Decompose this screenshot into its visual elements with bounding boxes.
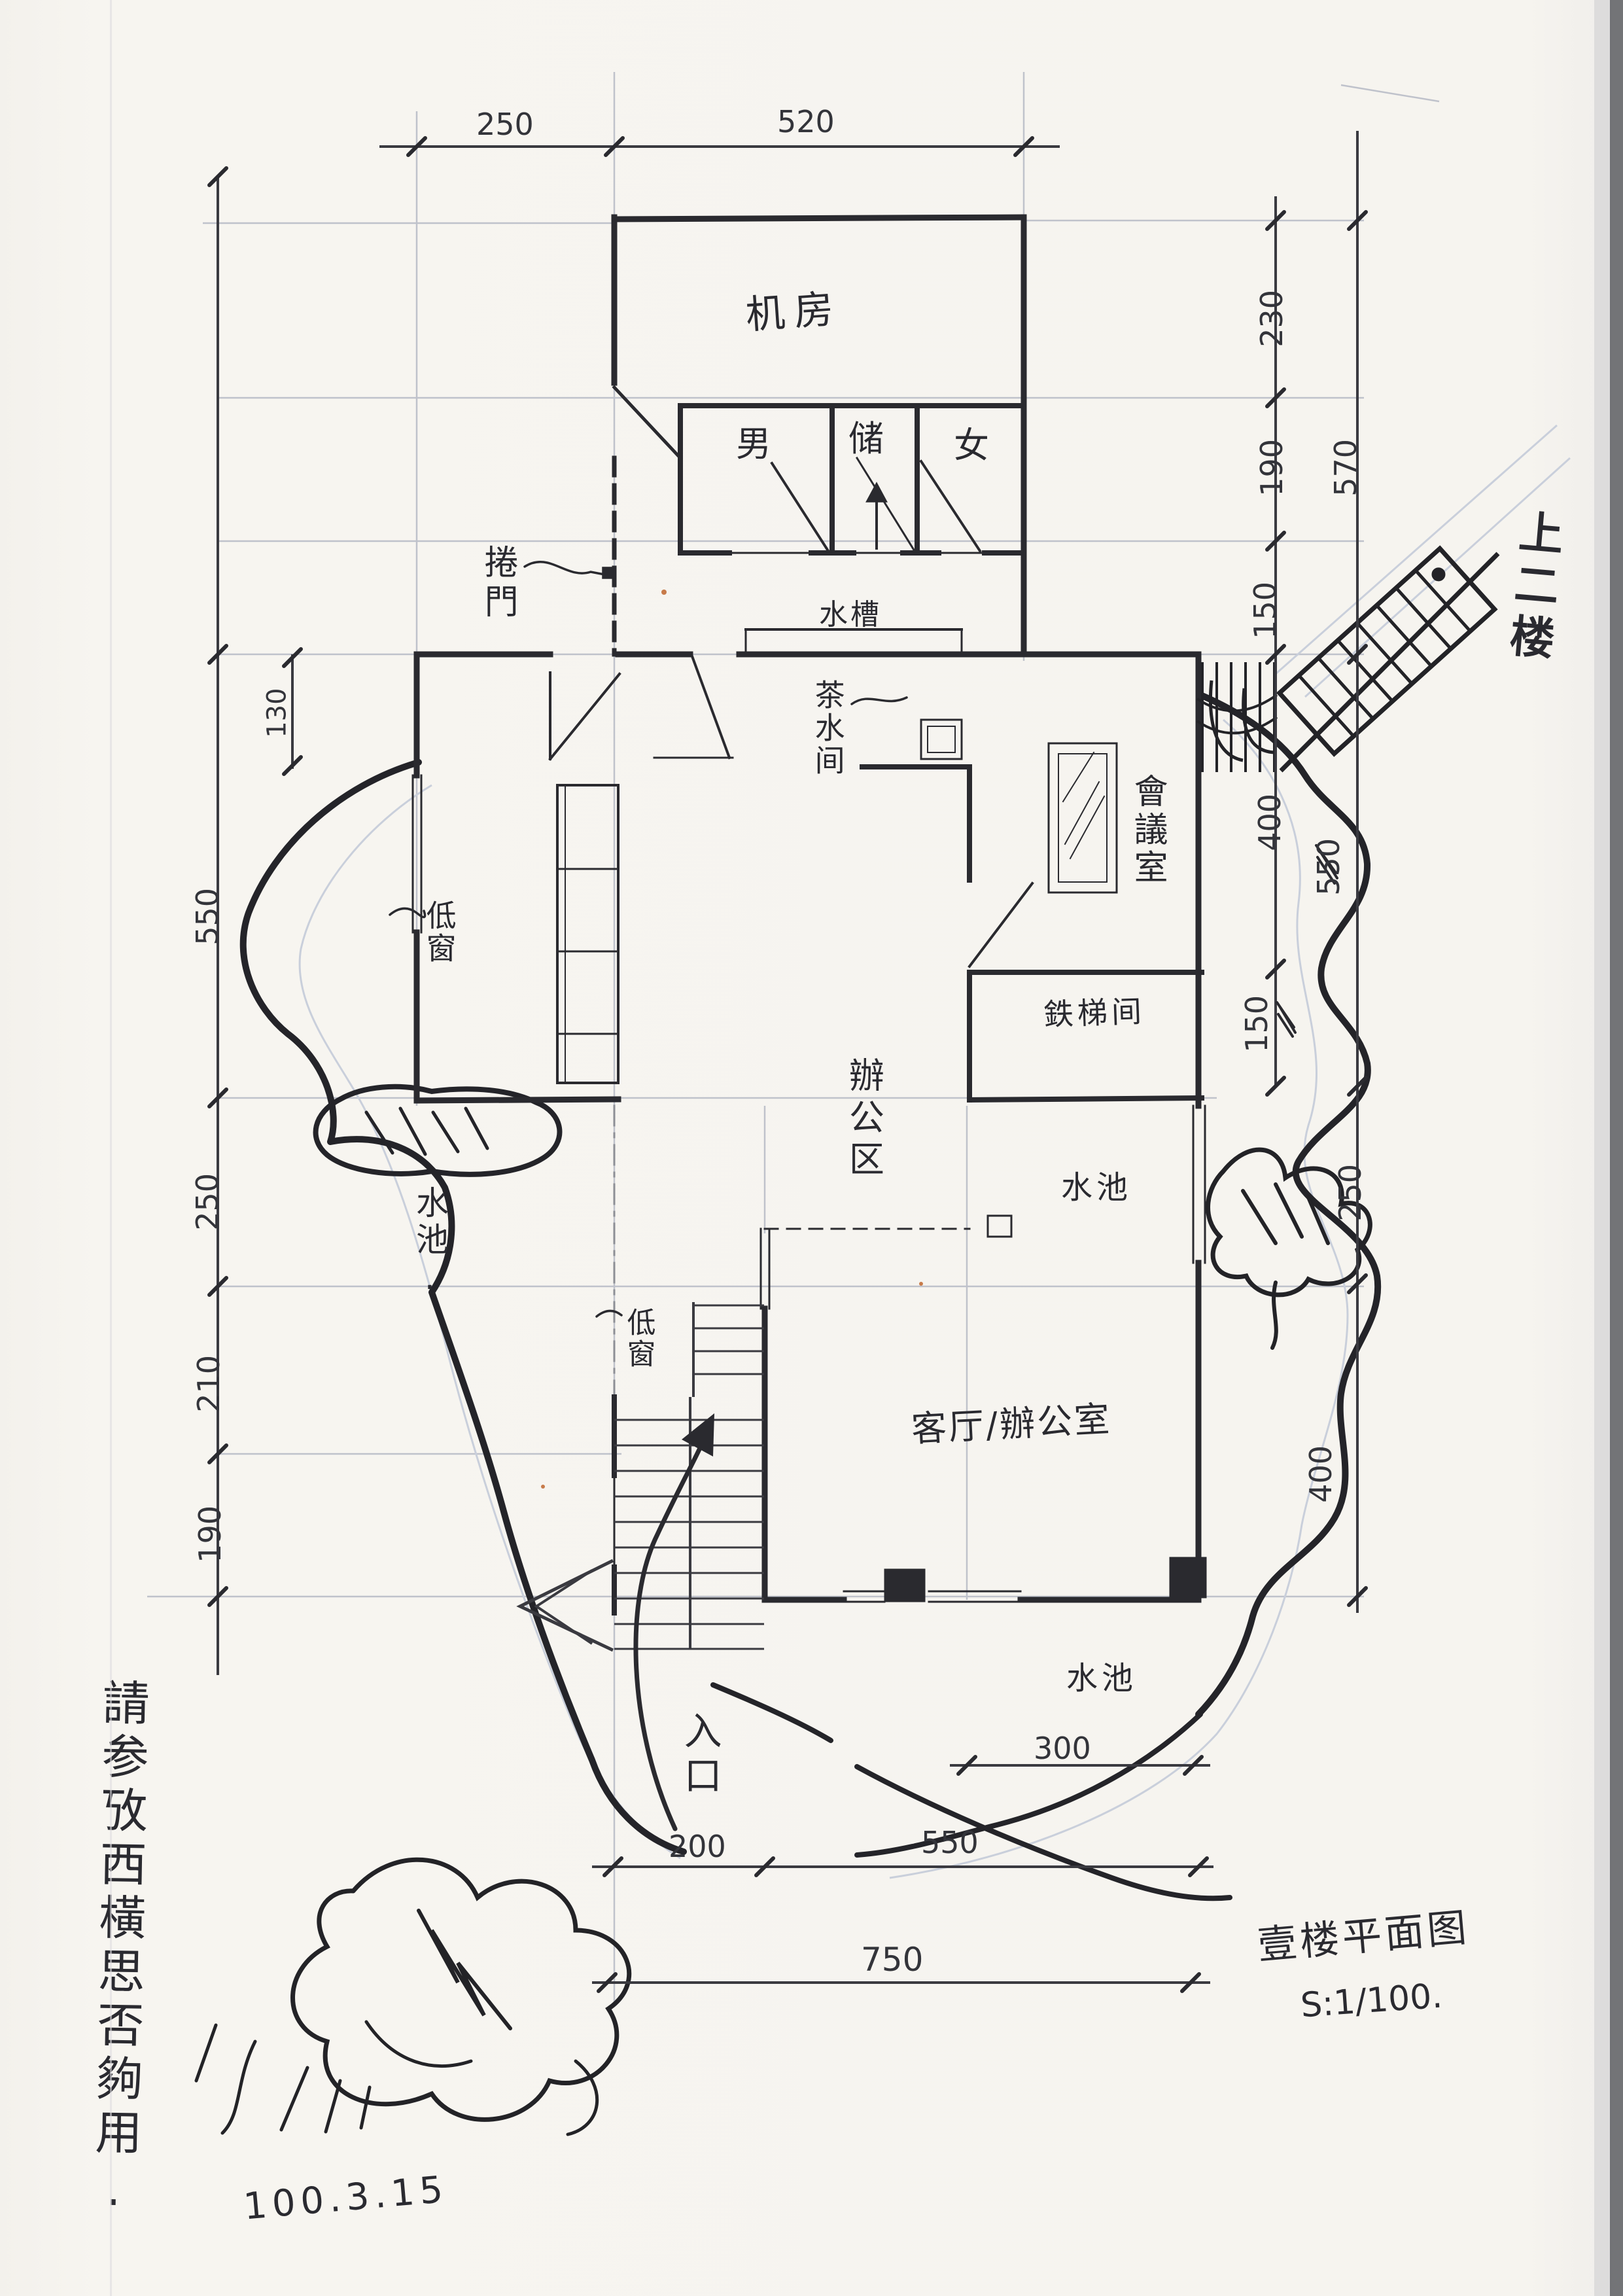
room-label-low-window-entry: 低窗 xyxy=(623,1307,654,1370)
dim-right-250: 250 xyxy=(1335,1154,1367,1232)
window-post xyxy=(884,1569,925,1602)
tree-scribble-bottom xyxy=(196,1860,629,2134)
dim-right-230: 230 xyxy=(1256,279,1289,358)
room-label-water-sink: 水槽 xyxy=(819,599,882,631)
dimension-ticks xyxy=(209,138,1366,1991)
room-label-toilet-male: 男 xyxy=(736,425,771,463)
dim-top-520: 520 xyxy=(777,106,835,139)
margin-note: 請参攷西橫思否夠用. xyxy=(87,1678,147,2223)
corner-post xyxy=(1170,1557,1206,1598)
dim-right-400-meeting: 400 xyxy=(1254,783,1287,862)
dim-right-570: 570 xyxy=(1330,429,1363,507)
dim-right-550: 550 xyxy=(1313,828,1346,906)
room-label-iron-stair-room: 鉄梯间 xyxy=(1043,995,1146,1031)
floor-plan-sheet: 机房 男 储 女 捲門 水槽 茶水间 會議室 鉄梯间 低窗 辦公区 水池. 水池… xyxy=(0,0,1623,2296)
dim-top-250: 250 xyxy=(476,109,534,141)
shelf-unit xyxy=(557,785,618,1083)
room-label-low-window-left: 低窗 xyxy=(423,900,455,965)
storage-door-arrow xyxy=(867,484,886,501)
room-label-machine-room: 机房 xyxy=(744,288,844,337)
paper-crease xyxy=(110,0,112,2296)
room-label-office-area: 辦公区 xyxy=(844,1057,882,1182)
dim-bottom-550: 550 xyxy=(921,1827,979,1860)
room-label-pool-right: 水池 xyxy=(1061,1171,1132,1205)
scan-edge-light xyxy=(1594,0,1611,2296)
dim-right-190: 190 xyxy=(1256,429,1289,507)
room-label-toilet-female: 女 xyxy=(954,427,989,465)
dim-bottom-300: 300 xyxy=(1034,1733,1091,1765)
dim-left-130: 130 xyxy=(263,674,291,752)
dim-right-150-scribble: 150 xyxy=(1241,985,1274,1063)
dimension-lines xyxy=(218,131,1357,1983)
dim-bottom-750: 750 xyxy=(861,1942,923,1977)
dim-right-150: 150 xyxy=(1249,571,1282,650)
room-label-roller-door: 捲門 xyxy=(480,544,516,623)
room-label-tea-room: 茶水间 xyxy=(811,679,844,777)
dim-left-250: 250 xyxy=(192,1163,224,1241)
dim-right-400-lower: 400 xyxy=(1305,1435,1338,1513)
room-label-pool-bottom: 水池 xyxy=(1066,1662,1137,1696)
pencil-echo-curves xyxy=(300,425,1570,1878)
dim-left-190: 190 xyxy=(194,1495,227,1574)
overwrite-scribble-150 xyxy=(1277,1002,1295,1036)
dim-left-550: 550 xyxy=(192,877,224,956)
room-label-storage: 储 xyxy=(848,420,884,458)
dim-bottom-200: 200 xyxy=(669,1831,726,1863)
room-label-pool-left: 水池. xyxy=(412,1186,447,1301)
scan-edge-dark xyxy=(1610,0,1623,2296)
room-label-meeting-room: 會議室 xyxy=(1129,773,1166,887)
paper-specks xyxy=(541,590,923,1489)
room-label-entrance: 入口 xyxy=(679,1711,720,1800)
dim-left-210: 210 xyxy=(193,1345,226,1423)
